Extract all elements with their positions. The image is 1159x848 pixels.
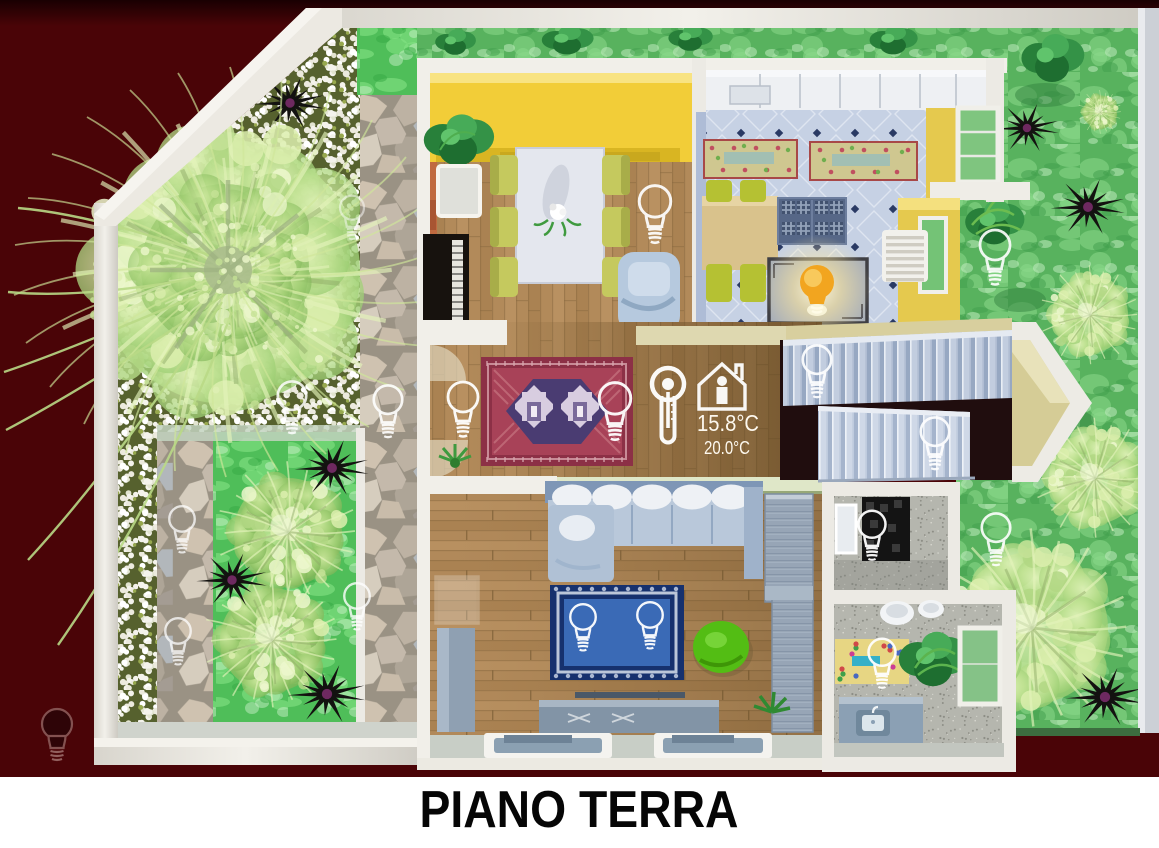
svg-text:PIANO TERRA: PIANO TERRA bbox=[420, 781, 739, 839]
svg-text:20.0°C: 20.0°C bbox=[704, 438, 750, 458]
svg-text:15.8°C: 15.8°C bbox=[697, 410, 759, 436]
